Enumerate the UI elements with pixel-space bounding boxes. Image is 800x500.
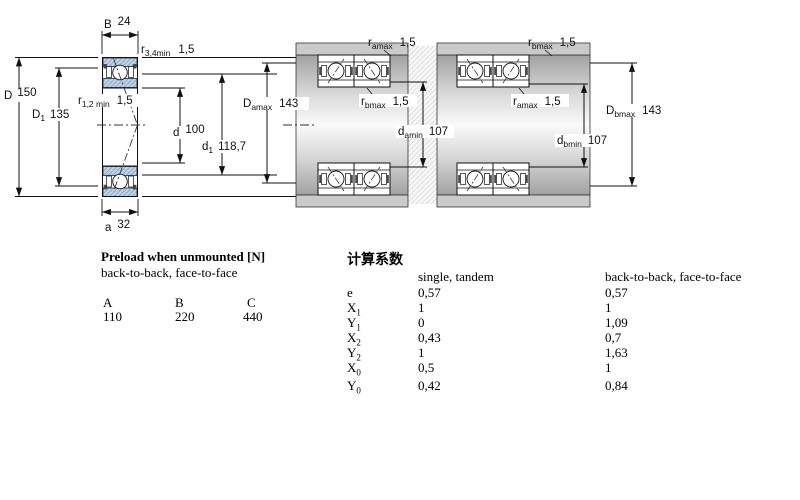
seal-right: [489, 67, 491, 75]
cage-left: [358, 66, 363, 77]
cage-right: [382, 66, 387, 77]
tspan-shape: D: [4, 90, 12, 102]
dimension-Dbmax: Dbmax143: [590, 63, 672, 186]
factor-single-value: 0,42: [418, 378, 441, 394]
tspan-shape: 143: [642, 105, 661, 117]
seal-left: [355, 67, 357, 75]
seal-left: [458, 67, 460, 75]
seal-left: [319, 175, 321, 183]
tspan-shape: 1: [40, 113, 45, 123]
tspan-shape: 107: [429, 126, 448, 138]
preload-value-A: 110: [103, 309, 122, 325]
seal-right: [350, 67, 352, 75]
cage-left: [497, 174, 502, 185]
tspan-shape: amax: [517, 100, 539, 110]
tspan-shape: 107: [588, 135, 607, 147]
factors-col-single-header: single, tandem: [418, 269, 494, 285]
cage-left: [358, 174, 363, 185]
factor-single-value: 0,57: [418, 285, 441, 301]
factor-symbol: X0: [347, 360, 361, 378]
seal-left: [319, 67, 321, 75]
cage-right: [129, 67, 134, 78]
tspan-shape: 24: [118, 16, 131, 28]
preload-value-B: 220: [175, 309, 195, 325]
outer-ring-bottom: [103, 188, 137, 197]
dim-label-D1: D1135: [32, 109, 69, 123]
tspan-shape: 1,5: [545, 96, 561, 108]
tspan-shape: 150: [17, 87, 36, 99]
tspan-shape: amax: [372, 41, 394, 51]
tspan-shape: bmin: [563, 139, 582, 149]
tspan-shape: 135: [50, 109, 69, 121]
tspan-shape: D: [606, 105, 614, 117]
cage-right: [521, 66, 526, 77]
dimension-B: B24: [102, 16, 138, 54]
dimension-r12: r1,2 min1,5: [76, 94, 142, 109]
factor-pair-value: 0,7: [605, 330, 621, 346]
tspan-shape: 1,2 min: [82, 99, 110, 109]
factor-pair-value: 1: [605, 360, 612, 376]
tspan-shape: B: [104, 19, 112, 31]
tspan-shape: bmax: [532, 41, 554, 51]
dim-label-ramax: ramax1,5: [368, 37, 416, 51]
seal-right: [525, 67, 527, 75]
technical-drawing: B24 r3,4min1,5 D150 D1135 r1,2 min1,5 d1…: [0, 0, 800, 246]
tspan-shape: D: [32, 109, 40, 121]
factor-pair-value: 0,84: [605, 378, 628, 394]
cage-left: [107, 176, 112, 187]
factor-symbol: Y0: [347, 378, 361, 396]
dimension-r34: r3,4min1,5: [141, 44, 194, 58]
tspan-shape: d: [173, 127, 179, 139]
housing-band-bottom: [296, 195, 408, 207]
seal-right: [525, 175, 527, 183]
dim-label-r34: r3,4min1,5: [141, 44, 194, 58]
seal-left: [458, 175, 460, 183]
dimension-D1: D1135: [30, 68, 98, 186]
tspan-shape: 1: [208, 145, 213, 155]
dimension-d: d100: [142, 88, 205, 163]
factor-single-value: 1: [418, 345, 425, 361]
dimension-a: a32: [102, 199, 138, 234]
cage-left: [107, 67, 112, 78]
factors-col-pair-header: back-to-back, face-to-face: [605, 269, 741, 285]
dimension-d1: d1118,7: [142, 74, 277, 175]
tspan-shape: 143: [279, 98, 298, 110]
seal-right: [386, 175, 388, 183]
seal-left: [494, 67, 496, 75]
factor-pair-value: 0,57: [605, 285, 628, 301]
tspan-shape: 1,5: [178, 44, 194, 56]
housing-band-bottom: [437, 195, 590, 207]
factor-pair-value: 1,09: [605, 315, 628, 331]
cage-left: [461, 174, 466, 185]
factor-pair-value: 1: [605, 300, 612, 316]
tspan-shape: 1,5: [393, 96, 409, 108]
seal-right: [350, 175, 352, 183]
factor-single-value: 1: [418, 300, 425, 316]
preload-value-C: 440: [243, 309, 263, 325]
tspan-shape: amin: [404, 130, 423, 140]
cage-right: [346, 66, 351, 77]
tspan-shape: 3,4min: [145, 48, 171, 58]
cage-right: [485, 174, 490, 185]
tspan-shape: 1,5: [400, 37, 416, 49]
factors-table-title: 计算系数: [347, 249, 403, 269]
dim-label-a: a32: [105, 219, 130, 234]
tspan-shape: bmax: [614, 109, 636, 119]
dim-label-rbmax2: rbmax1,5: [528, 37, 576, 51]
preload-table-title: Preload when unmounted [N]: [101, 249, 265, 265]
dim-label-B: B24: [104, 16, 131, 31]
dimension-D: D150: [2, 58, 98, 197]
tspan-shape: amax: [251, 102, 273, 112]
factor-pair-value: 1,63: [605, 345, 628, 361]
bearing-datasheet-page: { "dims": { "single": { "B": {"sym":"B",…: [0, 0, 800, 500]
cage-right: [382, 174, 387, 185]
seal-left: [355, 175, 357, 183]
seal-left: [494, 175, 496, 183]
cage-right: [346, 174, 351, 185]
tspan-shape: D: [243, 98, 251, 110]
tspan-shape: bmax: [365, 100, 387, 110]
factor-single-value: 0,43: [418, 330, 441, 346]
factor-single-value: 0: [418, 315, 425, 331]
cage-left: [322, 174, 327, 185]
cage-right: [485, 66, 490, 77]
cage-left: [322, 66, 327, 77]
tspan-shape: 100: [185, 124, 204, 136]
preload-table-subtitle: back-to-back, face-to-face: [101, 265, 237, 281]
seal-right: [386, 67, 388, 75]
cage-right: [129, 176, 134, 187]
factor-single-value: 0,5: [418, 360, 434, 376]
seal-right: [489, 175, 491, 183]
cage-left: [461, 66, 466, 77]
tspan-shape: 118,7: [218, 141, 246, 153]
tspan-shape: 1,5: [560, 37, 576, 49]
tspan-shape: 1,5: [117, 95, 133, 107]
cage-right: [521, 174, 526, 185]
tspan-shape: a: [105, 222, 112, 234]
tspan-shape: 32: [117, 219, 130, 231]
cage-left: [497, 66, 502, 77]
